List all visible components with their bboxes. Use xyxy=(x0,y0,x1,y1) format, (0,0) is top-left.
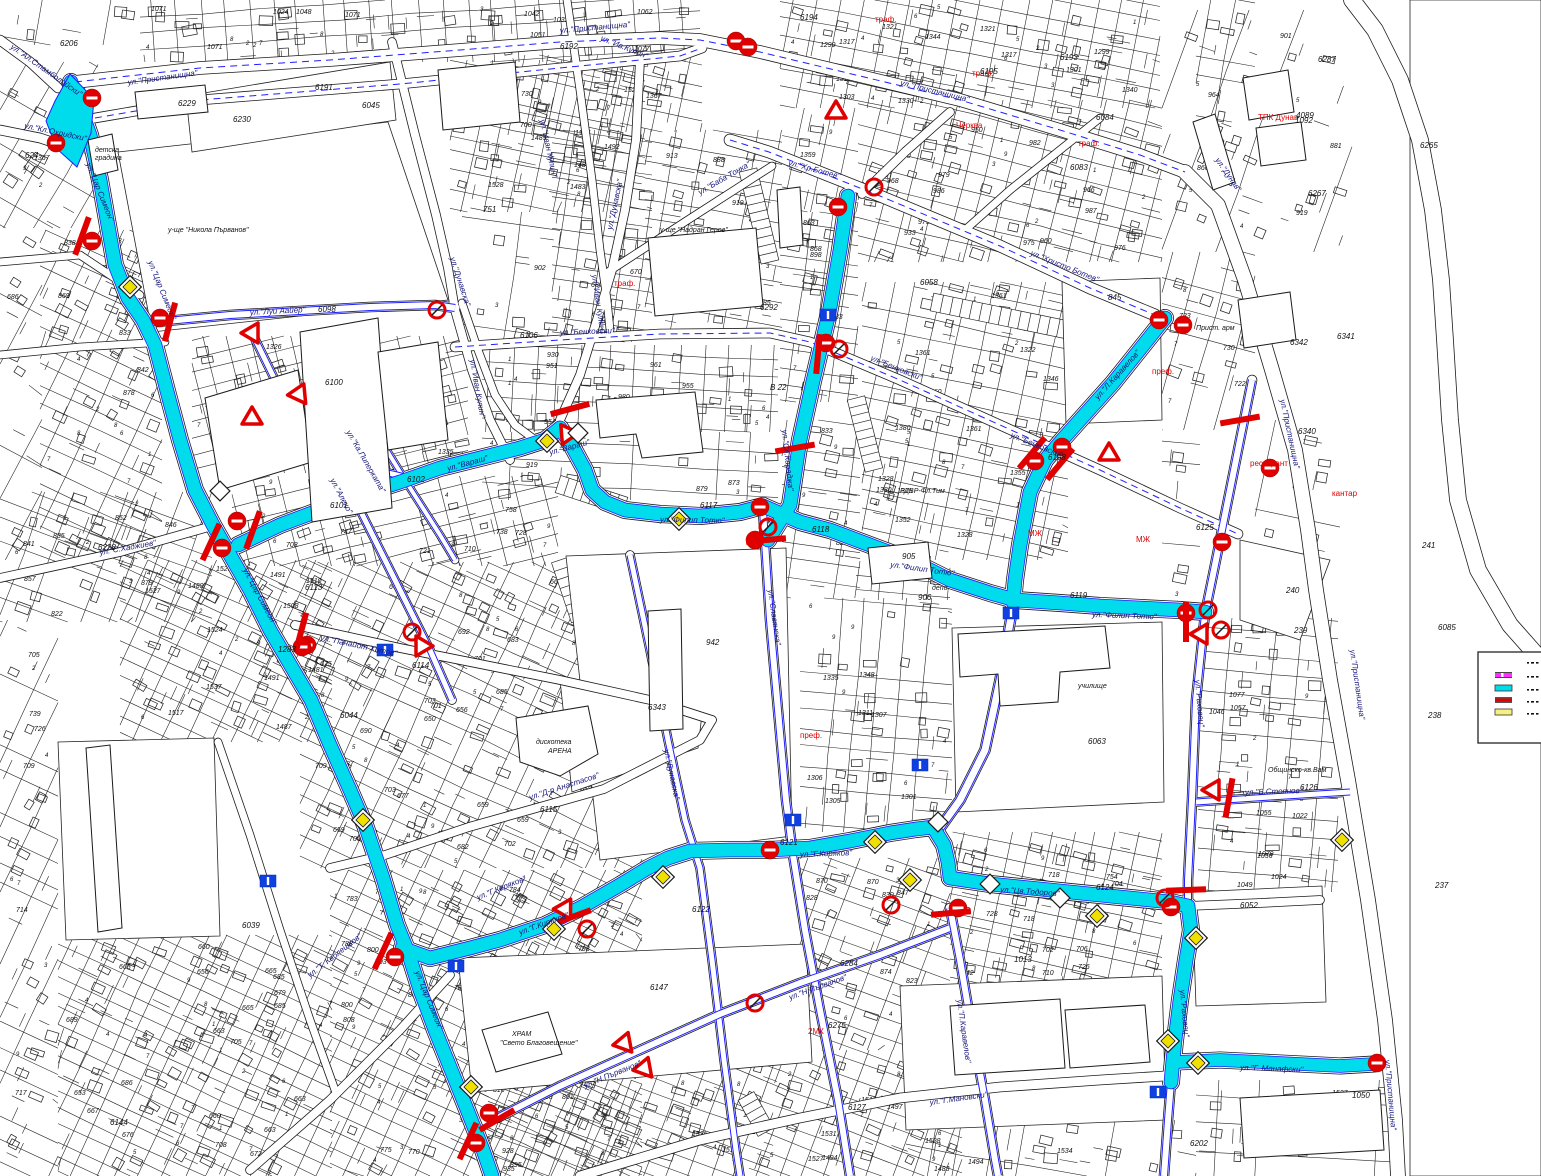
svg-text:1: 1 xyxy=(508,381,511,387)
svg-text:6343: 6343 xyxy=(648,703,666,712)
svg-text:6202: 6202 xyxy=(1190,1139,1208,1148)
svg-text:1491: 1491 xyxy=(270,572,286,579)
svg-text:702: 702 xyxy=(1042,947,1054,954)
svg-text:"Свето Благовещение": "Свето Благовещение" xyxy=(500,1040,578,1047)
svg-text:1: 1 xyxy=(520,473,523,479)
svg-text:656: 656 xyxy=(456,707,468,714)
svg-text:1491: 1491 xyxy=(264,675,280,682)
svg-text:6119: 6119 xyxy=(1070,591,1088,600)
svg-text:1013: 1013 xyxy=(1014,955,1032,964)
svg-text:1: 1 xyxy=(927,922,930,928)
svg-text:6275: 6275 xyxy=(828,1021,846,1030)
svg-text:692: 692 xyxy=(458,629,470,636)
svg-text:677: 677 xyxy=(397,793,410,800)
svg-text:детска: детска xyxy=(95,146,119,154)
svg-text:913: 913 xyxy=(666,153,678,160)
svg-text:986: 986 xyxy=(933,188,945,195)
svg-text:822: 822 xyxy=(51,611,63,618)
svg-text:1305: 1305 xyxy=(825,798,841,805)
svg-text:6229: 6229 xyxy=(178,99,196,108)
svg-text:1071: 1071 xyxy=(345,12,361,19)
svg-text:751: 751 xyxy=(483,205,496,214)
svg-text:841: 841 xyxy=(23,541,35,548)
svg-text:667: 667 xyxy=(87,1108,100,1115)
svg-text:653: 653 xyxy=(74,1090,86,1097)
svg-text:2: 2 xyxy=(603,1115,608,1121)
svg-text:6045: 6045 xyxy=(362,101,380,110)
svg-text:879: 879 xyxy=(141,580,153,587)
svg-text:преф.: преф. xyxy=(800,731,822,740)
svg-text:2: 2 xyxy=(245,41,250,47)
svg-text:833: 833 xyxy=(119,330,131,337)
svg-text:1: 1 xyxy=(334,894,337,900)
svg-text:2: 2 xyxy=(31,666,36,672)
svg-text:775: 775 xyxy=(380,1147,392,1154)
svg-text:2: 2 xyxy=(234,637,239,643)
svg-text:665: 665 xyxy=(119,964,131,971)
svg-text:2: 2 xyxy=(610,923,615,929)
svg-text:1531: 1531 xyxy=(821,1131,837,1138)
svg-text:701: 701 xyxy=(430,703,442,710)
svg-text:B 22: B 22 xyxy=(770,383,787,392)
svg-text:801: 801 xyxy=(562,1094,574,1101)
svg-text:2: 2 xyxy=(261,514,266,520)
svg-text:1508: 1508 xyxy=(283,603,299,610)
svg-text:1321: 1321 xyxy=(980,26,996,33)
svg-text:1321: 1321 xyxy=(882,24,898,31)
svg-text:1328: 1328 xyxy=(957,532,973,539)
svg-text:1537: 1537 xyxy=(206,684,223,691)
svg-text:717: 717 xyxy=(15,1090,28,1097)
svg-text:6102: 6102 xyxy=(407,475,425,484)
svg-text:1328: 1328 xyxy=(878,476,894,483)
svg-text:6341: 6341 xyxy=(1337,332,1355,341)
svg-text:906: 906 xyxy=(918,593,932,602)
svg-text:847: 847 xyxy=(897,890,910,897)
svg-text:6121: 6121 xyxy=(780,838,798,847)
svg-text:705: 705 xyxy=(28,652,40,659)
svg-text:1301: 1301 xyxy=(1066,67,1082,74)
svg-text:739: 739 xyxy=(29,711,41,718)
svg-text:1322: 1322 xyxy=(1020,347,1036,354)
svg-text:1348: 1348 xyxy=(859,672,875,679)
svg-text:1361: 1361 xyxy=(966,426,982,433)
svg-text:237: 237 xyxy=(1434,881,1449,890)
svg-text:708: 708 xyxy=(286,542,298,549)
svg-text:1056: 1056 xyxy=(1257,853,1273,860)
svg-text:2МК: 2МК xyxy=(808,1027,824,1036)
svg-text:869: 869 xyxy=(58,293,70,300)
svg-text:1303: 1303 xyxy=(839,94,855,101)
svg-text:659: 659 xyxy=(477,802,489,809)
svg-text:705: 705 xyxy=(349,836,361,843)
svg-text:1071: 1071 xyxy=(151,6,167,13)
svg-text:955: 955 xyxy=(682,383,694,390)
svg-text:685: 685 xyxy=(496,689,508,696)
svg-text:675: 675 xyxy=(320,661,332,668)
svg-text:2: 2 xyxy=(787,1072,792,1078)
svg-text:2: 2 xyxy=(595,87,600,93)
svg-text:6114: 6114 xyxy=(412,661,430,670)
svg-text:710: 710 xyxy=(464,546,476,553)
svg-text:754: 754 xyxy=(1106,874,1118,881)
svg-text:2: 2 xyxy=(262,673,267,679)
svg-text:1: 1 xyxy=(285,1112,288,1118)
svg-text:718: 718 xyxy=(1048,872,1060,879)
svg-text:1049: 1049 xyxy=(1237,882,1253,889)
svg-text:6284: 6284 xyxy=(840,959,858,968)
svg-text:2: 2 xyxy=(198,609,203,615)
svg-text:2: 2 xyxy=(1034,219,1039,225)
svg-text:660: 660 xyxy=(198,944,210,951)
svg-text:919: 919 xyxy=(526,462,538,469)
svg-text:6113: 6113 xyxy=(305,583,323,592)
svg-text:714: 714 xyxy=(16,907,28,914)
svg-text:АРЕНА: АРЕНА xyxy=(547,748,572,755)
svg-text:2: 2 xyxy=(566,180,571,186)
svg-text:6039: 6039 xyxy=(242,921,260,930)
svg-text:1367: 1367 xyxy=(646,93,663,100)
svg-text:1: 1 xyxy=(219,1126,222,1132)
svg-text:624: 624 xyxy=(25,151,39,160)
svg-text:1524: 1524 xyxy=(207,627,223,634)
svg-text:РДВР-Фл.Тим: РДВР-Фл.Тим xyxy=(900,488,945,495)
svg-text:240: 240 xyxy=(1285,586,1300,595)
svg-text:686: 686 xyxy=(121,1080,133,1087)
svg-text:1: 1 xyxy=(423,803,426,809)
svg-text:705: 705 xyxy=(230,1039,242,1046)
svg-text:1380: 1380 xyxy=(876,487,892,494)
svg-text:870: 870 xyxy=(816,878,828,885)
svg-text:1492: 1492 xyxy=(604,144,620,151)
svg-text:1483: 1483 xyxy=(570,184,586,191)
svg-text:833: 833 xyxy=(821,428,833,435)
svg-text:2: 2 xyxy=(919,99,924,105)
svg-text:6340: 6340 xyxy=(1298,427,1316,436)
svg-text:238: 238 xyxy=(1427,711,1442,720)
svg-text:1077: 1077 xyxy=(1229,692,1246,699)
svg-text:Черква: Черква xyxy=(956,121,983,130)
svg-text:659: 659 xyxy=(517,817,529,824)
svg-text:1046: 1046 xyxy=(1209,709,1225,716)
svg-text:987: 987 xyxy=(1085,208,1098,215)
svg-text:700: 700 xyxy=(520,122,532,129)
svg-text:1307: 1307 xyxy=(871,712,888,719)
svg-text:1: 1 xyxy=(1093,168,1096,174)
svg-text:783: 783 xyxy=(346,896,358,903)
svg-text:2: 2 xyxy=(252,43,257,49)
svg-text:1326: 1326 xyxy=(266,344,282,351)
svg-text:770: 770 xyxy=(408,1149,420,1156)
svg-text:808: 808 xyxy=(343,1017,355,1024)
svg-text:6267: 6267 xyxy=(1308,189,1326,198)
svg-text:1024: 1024 xyxy=(273,9,289,16)
svg-text:2: 2 xyxy=(984,867,989,873)
svg-text:6085: 6085 xyxy=(1438,623,1456,632)
svg-text:683: 683 xyxy=(507,637,519,644)
svg-text:6084: 6084 xyxy=(1096,113,1114,122)
svg-text:1330: 1330 xyxy=(898,98,914,105)
svg-text:Прист. арм: Прист. арм xyxy=(1196,325,1235,332)
svg-text:241: 241 xyxy=(1421,541,1435,550)
svg-text:663: 663 xyxy=(213,1028,225,1035)
svg-text:1534: 1534 xyxy=(1057,1148,1073,1155)
svg-text:траф.: траф. xyxy=(1078,139,1099,148)
svg-text:930: 930 xyxy=(547,352,559,359)
svg-text:1361: 1361 xyxy=(915,350,931,357)
svg-text:6125: 6125 xyxy=(1196,523,1214,532)
svg-text:2: 2 xyxy=(134,502,139,508)
svg-text:1483: 1483 xyxy=(934,1166,950,1173)
svg-text:665: 665 xyxy=(242,1005,254,1012)
svg-text:919: 919 xyxy=(732,200,744,207)
svg-text:730: 730 xyxy=(521,91,533,98)
svg-text:1335: 1335 xyxy=(438,449,454,456)
svg-text:823: 823 xyxy=(906,978,918,985)
svg-text:1283: 1283 xyxy=(278,645,296,654)
svg-text:6117: 6117 xyxy=(700,501,718,510)
svg-text:1022: 1022 xyxy=(1292,813,1308,820)
svg-text:6115: 6115 xyxy=(540,805,558,814)
svg-text:842: 842 xyxy=(137,367,149,374)
svg-text:1494: 1494 xyxy=(968,1159,984,1166)
svg-text:6230: 6230 xyxy=(233,115,251,124)
svg-text:670: 670 xyxy=(630,269,642,276)
svg-text:828: 828 xyxy=(806,895,818,902)
svg-text:6098: 6098 xyxy=(318,305,336,314)
svg-text:1048: 1048 xyxy=(296,9,312,16)
svg-text:1024: 1024 xyxy=(1271,874,1287,881)
svg-text:2: 2 xyxy=(1141,195,1146,201)
svg-text:689: 689 xyxy=(66,1017,78,1024)
svg-text:901: 901 xyxy=(1280,33,1292,40)
svg-text:895: 895 xyxy=(510,1162,522,1169)
svg-text:2: 2 xyxy=(38,183,43,189)
svg-text:721: 721 xyxy=(419,548,431,555)
svg-text:1346: 1346 xyxy=(1043,376,1059,383)
svg-text:1355: 1355 xyxy=(1010,470,1026,477)
svg-text:685: 685 xyxy=(273,974,285,981)
svg-text:758: 758 xyxy=(505,507,517,514)
svg-text:МЖ: МЖ xyxy=(1136,535,1151,544)
svg-text:1: 1 xyxy=(508,357,511,363)
svg-text:ТПК Дунав: ТПК Дунав xyxy=(1258,113,1298,122)
svg-text:728: 728 xyxy=(515,530,527,537)
svg-text:6058: 6058 xyxy=(920,278,938,287)
svg-text:МЖ: МЖ xyxy=(1028,529,1043,538)
svg-text:1: 1 xyxy=(1236,762,1239,768)
svg-text:928: 928 xyxy=(502,1148,514,1155)
svg-text:1317: 1317 xyxy=(839,39,856,46)
svg-text:846: 846 xyxy=(165,522,177,529)
svg-text:1335: 1335 xyxy=(823,675,839,682)
svg-text:ресторант: ресторант xyxy=(1250,459,1288,468)
svg-text:у-ще "Никола Първанов": у-ще "Никола Първанов" xyxy=(167,227,249,234)
svg-text:1: 1 xyxy=(212,1022,215,1028)
svg-text:870: 870 xyxy=(867,879,879,886)
svg-text:1301: 1301 xyxy=(901,794,917,801)
svg-text:6342: 6342 xyxy=(1290,338,1308,347)
svg-text:663: 663 xyxy=(294,1096,306,1103)
svg-text:6195: 6195 xyxy=(980,67,998,76)
svg-text:6100: 6100 xyxy=(325,378,343,387)
svg-text:979: 979 xyxy=(938,172,950,179)
svg-text:982: 982 xyxy=(1029,140,1041,147)
svg-text:1: 1 xyxy=(728,397,731,403)
svg-text:2: 2 xyxy=(85,540,90,546)
svg-text:преф.: преф. xyxy=(1152,367,1174,376)
svg-text:6052: 6052 xyxy=(1240,901,1258,910)
svg-text:975: 975 xyxy=(1023,240,1035,247)
svg-text:6124: 6124 xyxy=(1096,883,1114,892)
svg-text:Общинско-кв.Вам: Общинско-кв.Вам xyxy=(1268,766,1327,774)
svg-text:659: 659 xyxy=(333,827,345,834)
svg-text:845: 845 xyxy=(1108,293,1122,302)
svg-text:730: 730 xyxy=(1223,345,1235,352)
svg-text:961: 961 xyxy=(650,362,662,369)
svg-text:6083: 6083 xyxy=(1070,163,1088,172)
svg-text:682: 682 xyxy=(457,844,469,851)
svg-text:747: 747 xyxy=(340,529,353,536)
svg-text:1494: 1494 xyxy=(822,1155,838,1162)
svg-text:6044: 6044 xyxy=(340,711,358,720)
svg-text:718: 718 xyxy=(1023,916,1035,923)
svg-text:686: 686 xyxy=(7,294,19,301)
svg-text:градина: градина xyxy=(95,154,122,162)
svg-text:6292: 6292 xyxy=(760,303,778,312)
svg-text:726: 726 xyxy=(34,726,46,733)
svg-text:траф.: траф. xyxy=(875,15,896,24)
svg-text:708: 708 xyxy=(215,1142,227,1149)
svg-text:1057: 1057 xyxy=(1230,705,1247,712)
svg-text:663: 663 xyxy=(264,1127,276,1134)
svg-text:1: 1 xyxy=(400,887,403,893)
svg-text:2: 2 xyxy=(241,1069,246,1075)
svg-text:868: 868 xyxy=(810,246,822,253)
svg-text:1340: 1340 xyxy=(1122,87,1138,94)
svg-text:6206: 6206 xyxy=(60,39,78,48)
svg-text:679: 679 xyxy=(274,990,286,997)
svg-text:2: 2 xyxy=(617,1140,622,1146)
svg-text:1299: 1299 xyxy=(820,42,836,49)
svg-text:у-ще "Надран Геров": у-ще "Надран Геров" xyxy=(659,226,728,234)
svg-text:1517: 1517 xyxy=(168,710,185,717)
svg-text:2: 2 xyxy=(969,930,974,936)
svg-text:6228: 6228 xyxy=(98,543,116,552)
svg-text:1352: 1352 xyxy=(895,517,911,524)
svg-text:898: 898 xyxy=(810,252,822,259)
svg-text:1487: 1487 xyxy=(276,724,293,731)
svg-text:902: 902 xyxy=(534,265,546,272)
svg-text:933: 933 xyxy=(904,230,916,237)
svg-text:1481: 1481 xyxy=(308,667,324,674)
svg-text:2: 2 xyxy=(95,407,100,413)
svg-text:1050: 1050 xyxy=(1352,1091,1370,1100)
svg-text:968: 968 xyxy=(887,178,899,185)
svg-text:1: 1 xyxy=(148,452,151,458)
svg-text:690: 690 xyxy=(360,728,372,735)
svg-text:878: 878 xyxy=(123,390,135,397)
svg-text:6101: 6101 xyxy=(330,501,348,510)
svg-text:1092: 1092 xyxy=(1295,116,1313,125)
svg-text:6265: 6265 xyxy=(1420,141,1438,150)
svg-text:1: 1 xyxy=(810,275,813,281)
svg-text:дискотека: дискотека xyxy=(536,738,571,746)
svg-text:1062: 1062 xyxy=(637,9,653,16)
svg-text:976: 976 xyxy=(1114,245,1126,252)
svg-text:6287: 6287 xyxy=(1318,55,1336,64)
svg-text:6192: 6192 xyxy=(560,42,578,51)
svg-text:919: 919 xyxy=(1296,210,1308,217)
svg-text:951: 951 xyxy=(546,363,558,370)
svg-text:траф.: траф. xyxy=(614,279,635,288)
svg-text:738: 738 xyxy=(496,529,508,536)
svg-text:2: 2 xyxy=(1035,46,1040,52)
svg-text:6193: 6193 xyxy=(1060,53,1078,62)
svg-text:838: 838 xyxy=(64,240,76,247)
svg-text:665: 665 xyxy=(265,968,277,975)
svg-text:852: 852 xyxy=(115,515,127,522)
svg-text:863: 863 xyxy=(803,220,815,227)
svg-text:798: 798 xyxy=(578,946,590,953)
svg-text:1: 1 xyxy=(1000,138,1003,144)
svg-text:училище: училище xyxy=(1077,683,1107,690)
svg-text:6118: 6118 xyxy=(812,525,830,534)
svg-text:722: 722 xyxy=(1234,381,1246,388)
svg-text:1528: 1528 xyxy=(488,182,504,189)
svg-text:706: 706 xyxy=(1076,946,1088,953)
svg-text:888: 888 xyxy=(713,157,725,164)
svg-text:709: 709 xyxy=(23,763,35,770)
svg-text:ХРАМ: ХРАМ xyxy=(511,1031,531,1038)
svg-text:ул."Г.Киряков": ул."Г.Киряков" xyxy=(799,848,854,859)
svg-text:874: 874 xyxy=(880,969,892,976)
svg-text:881: 881 xyxy=(1330,143,1342,150)
svg-text:726: 726 xyxy=(1078,964,1090,971)
svg-text:6191: 6191 xyxy=(315,83,333,92)
svg-text:6063: 6063 xyxy=(1088,737,1106,746)
svg-text:6127: 6127 xyxy=(848,1103,866,1112)
svg-text:1071: 1071 xyxy=(207,44,223,51)
svg-text:1055: 1055 xyxy=(1256,810,1272,817)
svg-text:650: 650 xyxy=(424,716,436,723)
svg-text:879: 879 xyxy=(696,486,708,493)
svg-text:1306: 1306 xyxy=(807,775,823,782)
svg-text:2: 2 xyxy=(489,21,494,27)
svg-text:6108: 6108 xyxy=(1048,453,1066,462)
svg-text:728: 728 xyxy=(986,911,998,918)
svg-text:1: 1 xyxy=(1133,20,1136,26)
svg-text:656: 656 xyxy=(197,969,209,976)
svg-text:2: 2 xyxy=(1014,341,1019,347)
svg-text:800: 800 xyxy=(341,1002,353,1009)
svg-text:873: 873 xyxy=(728,480,740,487)
svg-text:709: 709 xyxy=(315,763,327,770)
svg-text:685: 685 xyxy=(274,1003,286,1010)
svg-text:1344: 1344 xyxy=(925,34,941,41)
svg-text:6106: 6106 xyxy=(520,331,538,340)
svg-text:960: 960 xyxy=(1040,238,1052,245)
svg-text:6126: 6126 xyxy=(1300,783,1318,792)
svg-text:2: 2 xyxy=(1252,736,1257,742)
svg-text:1042: 1042 xyxy=(524,11,540,18)
svg-text:6147: 6147 xyxy=(650,983,668,992)
svg-text:676: 676 xyxy=(122,1132,134,1139)
svg-text:6194: 6194 xyxy=(800,13,818,22)
svg-text:800: 800 xyxy=(367,947,379,954)
svg-text:6122: 6122 xyxy=(692,905,710,914)
svg-text:703: 703 xyxy=(384,787,396,794)
